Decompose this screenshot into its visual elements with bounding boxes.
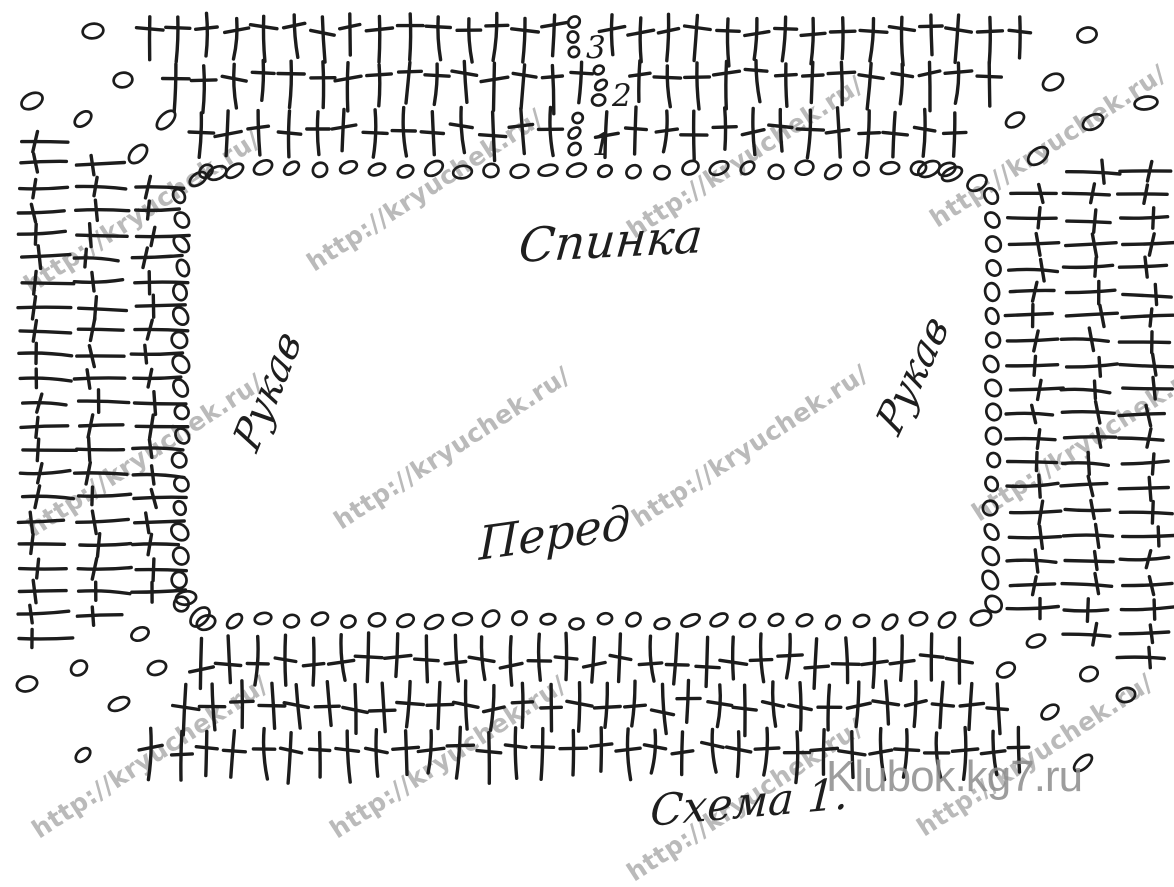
dc-stitch-icon (782, 17, 785, 61)
dc-stitch-icon (1121, 217, 1168, 219)
turning-chain-stack: 2 (591, 64, 632, 114)
dc-stitch-icon (74, 258, 118, 261)
dc-bar (426, 26, 450, 27)
row-number: 3 (586, 30, 606, 66)
dc-bar (486, 25, 508, 26)
chain-stitch-icon (129, 625, 150, 643)
dc-bar (750, 660, 771, 661)
dc-bar (1102, 160, 1104, 183)
dc-bar (87, 370, 90, 388)
dc-bar (1155, 284, 1156, 304)
dc-stitch-icon (842, 18, 843, 59)
dc-bar (1096, 524, 1099, 547)
dc-bar (1036, 234, 1040, 256)
dc-bar (1149, 234, 1154, 255)
dc-bar (1089, 328, 1093, 350)
dc-stitch-icon (1007, 560, 1056, 562)
dc-bar (151, 490, 156, 508)
dc-bar (567, 701, 592, 706)
dc-stitch-icon (870, 19, 874, 61)
dc-bar (946, 28, 972, 32)
chain-stitch-icon (395, 612, 415, 629)
chain-stitch-icon (982, 522, 1001, 543)
chain-stitch-icon (984, 282, 1001, 302)
dc-bar (1147, 429, 1151, 447)
dc-stitch-icon (18, 211, 64, 213)
dc-stitch-icon (231, 731, 235, 777)
dc-stitch-icon (493, 14, 497, 61)
dc-stitch-icon (1122, 315, 1173, 317)
dc-bar (789, 705, 811, 710)
dc-stitch-icon (263, 16, 264, 61)
dc-bar (153, 559, 154, 581)
chain-stitch-icon (1080, 111, 1105, 133)
dc-bar (355, 656, 382, 658)
dc-bar (1092, 234, 1096, 257)
dc-stitch-icon (1123, 294, 1171, 297)
dc-bar (284, 23, 305, 28)
dc-bar (915, 127, 935, 130)
dc-stitch-icon (294, 15, 298, 57)
site-watermark: Klubok.kg7.ru (826, 752, 1082, 802)
dc-stitch-icon (1006, 413, 1052, 415)
dc-bar (555, 657, 577, 659)
chain-stitch-icon (73, 745, 93, 764)
chain-stitch-icon (1116, 686, 1137, 703)
dc-stitch-icon (74, 280, 122, 283)
dc-bar (248, 126, 269, 129)
chain-stitch-icon (510, 609, 529, 628)
chain-stitch-icon (126, 141, 151, 166)
dc-stitch-icon (136, 305, 185, 306)
dc-stitch-icon (469, 19, 472, 62)
dc-bar (1149, 577, 1153, 595)
dc-bar (415, 659, 438, 661)
dc-bar (94, 177, 97, 195)
dc-stitch-icon (726, 61, 727, 108)
chain-stitch-icon (567, 31, 579, 44)
dc-stitch-icon (148, 728, 151, 779)
chain-stitch-icon (708, 159, 731, 178)
dc-stitch-icon (592, 638, 595, 682)
chain-stitch-icon (981, 353, 1001, 374)
dc-bar (862, 661, 887, 664)
left-chain-column (168, 187, 193, 614)
chain-stitch-icon (1134, 95, 1159, 111)
dc-bar (763, 702, 784, 707)
dc-bar (584, 663, 606, 668)
dc-bar (222, 76, 246, 81)
dc-stitch-icon (627, 729, 630, 780)
dc-bar (616, 748, 640, 751)
dc-stitch-icon (262, 61, 264, 101)
dc-bar (225, 28, 249, 32)
dc-stitch-icon (290, 61, 292, 107)
dc-bar (1149, 477, 1151, 500)
dc-bar (425, 75, 449, 76)
dc-stitch-icon (811, 18, 813, 63)
dc-stitch-icon (1011, 388, 1064, 390)
dc-bar (35, 224, 36, 244)
dc-stitch-icon (717, 685, 720, 727)
dc-bar (85, 249, 86, 267)
dc-bar (778, 655, 802, 656)
dc-bar (500, 663, 522, 668)
dc-bar (1146, 551, 1150, 568)
dc-stitch-icon (786, 64, 787, 106)
dc-bar (685, 26, 711, 30)
dc-stitch-icon (1123, 583, 1172, 585)
chain-stitch-icon (680, 158, 701, 177)
dc-bar (944, 132, 966, 133)
dc-bar (892, 73, 913, 76)
dc-bar (252, 72, 274, 73)
dc-bar (421, 132, 443, 134)
chain-stitch-icon (254, 611, 273, 625)
chain-stitch-icon (983, 234, 1004, 255)
dc-stitch-icon (379, 17, 380, 63)
dc-bar (259, 705, 285, 706)
dc-bar (610, 655, 631, 659)
dc-stitch-icon (80, 544, 131, 546)
dc-bar (366, 28, 392, 31)
dc-bar (33, 132, 38, 152)
dc-stitch-icon (1020, 17, 1021, 58)
dc-stitch-icon (76, 210, 129, 211)
dc-bar (427, 704, 453, 705)
dc-stitch-icon (1123, 388, 1173, 389)
dc-stitch-icon (522, 683, 523, 727)
top-edging-row (137, 13, 1031, 66)
dc-stitch-icon (1120, 557, 1168, 559)
dc-bar (172, 754, 193, 755)
dc-bar (505, 745, 526, 748)
dc-stitch-icon (132, 590, 186, 592)
dc-stitch-icon (350, 14, 351, 55)
dc-stitch-icon (1063, 463, 1109, 466)
dc-stitch-icon (382, 683, 385, 731)
dc-stitch-icon (712, 730, 716, 773)
chain-stitch-icon (591, 94, 606, 107)
chain-stitch-icon (15, 674, 39, 693)
dc-stitch-icon (780, 110, 782, 151)
dc-bar (509, 124, 532, 127)
dc-stitch-icon (650, 636, 654, 681)
dc-bar (625, 705, 646, 707)
crochet-diagram: http://kryuchek.ru/http://kryuchek.ru/ht… (0, 0, 1174, 843)
turning-chain-stack: 3 (566, 14, 606, 66)
chain-stitch-icon (653, 165, 670, 180)
dc-stitch-icon (1062, 584, 1112, 587)
chain-stitch-icon (565, 161, 587, 179)
dc-bar (275, 658, 296, 662)
chain-stitch-icon (995, 660, 1018, 681)
dc-stitch-icon (77, 163, 125, 166)
dc-bar (1149, 647, 1150, 667)
dc-bar (332, 125, 356, 129)
dc-stitch-icon (1061, 389, 1110, 393)
dc-bar (281, 748, 302, 753)
dc-bar (92, 511, 96, 533)
dc-stitch-icon (814, 639, 817, 689)
dc-stitch-icon (80, 425, 123, 426)
dc-stitch-icon (22, 283, 74, 284)
dc-bar (33, 297, 36, 319)
row-number: 2 (611, 78, 632, 114)
dc-bar (418, 748, 444, 751)
dc-bar (92, 607, 93, 625)
dc-stitch-icon (541, 729, 543, 780)
right-sleeve-block (1005, 160, 1174, 668)
dc-stitch-icon (79, 401, 129, 403)
dc-stitch-icon (1121, 607, 1174, 610)
dc-stitch-icon (1009, 269, 1058, 271)
dc-bar (801, 33, 825, 35)
dc-bar (445, 662, 466, 664)
dc-stitch-icon (136, 209, 180, 210)
dc-stitch-icon (134, 377, 181, 378)
dc-bar (148, 369, 152, 387)
dc-bar (542, 22, 568, 26)
chain-stitch-icon (984, 258, 1004, 278)
dc-stitch-icon (579, 62, 582, 102)
dc-bar (152, 466, 154, 484)
dc-bar (769, 125, 792, 127)
dc-stitch-icon (1119, 414, 1164, 416)
chain-stitch-icon (766, 162, 785, 181)
dc-stitch-icon (1061, 339, 1108, 341)
dc-stitch-icon (1065, 509, 1110, 510)
dc-bar (1096, 402, 1100, 423)
dc-bar (30, 512, 32, 533)
dc-stitch-icon (19, 638, 73, 639)
dc-stitch-icon (955, 15, 959, 62)
chain-stitch-icon (170, 377, 190, 399)
dc-stitch-icon (923, 109, 925, 156)
dc-bar (595, 707, 621, 708)
dc-bar (37, 394, 42, 412)
chain-stitch-icon (566, 14, 582, 30)
dc-stitch-icon (74, 378, 124, 379)
dc-bar (150, 415, 154, 437)
dc-bar (38, 246, 40, 269)
dc-bar (832, 664, 859, 665)
dc-bar (755, 748, 779, 749)
dc-bar (1153, 354, 1156, 375)
dc-bar (452, 71, 477, 75)
dc-bar (1099, 358, 1100, 377)
dc-stitch-icon (406, 731, 407, 775)
dc-bar (33, 321, 36, 342)
dc-stitch-icon (846, 638, 848, 683)
chain-stitch-icon (936, 609, 958, 630)
dc-bar (656, 129, 677, 132)
dc-stitch-icon (438, 17, 441, 60)
dc-bar (91, 156, 94, 175)
dc-bar (1008, 747, 1028, 748)
dc-stitch-icon (21, 161, 67, 162)
dc-stitch-icon (754, 19, 757, 60)
chain-stitch-icon (206, 163, 229, 182)
chain-stitch-icon (482, 163, 499, 179)
dc-bar (1034, 331, 1038, 351)
chain-stitch-icon (509, 163, 530, 180)
dc-bar (644, 745, 665, 749)
dc-stitch-icon (1066, 243, 1116, 246)
dc-stitch-icon (133, 448, 183, 450)
dc-stitch-icon (1009, 243, 1058, 245)
dc-bar (450, 124, 472, 128)
dc-stitch-icon (955, 63, 958, 103)
chain-stitch-icon (168, 520, 192, 543)
chain-stitch-icon (795, 612, 814, 628)
dc-bar (480, 135, 506, 137)
dc-stitch-icon (635, 107, 636, 154)
dc-bar (1038, 208, 1040, 228)
dc-stitch-icon (902, 17, 904, 65)
dc-bar (860, 30, 887, 32)
dc-stitch-icon (761, 634, 764, 682)
dc-stitch-icon (379, 65, 380, 106)
dc-bar (1153, 208, 1154, 228)
top-foundation-chain (197, 157, 958, 181)
dc-bar (315, 706, 339, 707)
dc-stitch-icon (510, 637, 511, 686)
dc-stitch-icon (1120, 512, 1172, 514)
dc-bar (196, 747, 217, 749)
dc-bar (397, 703, 424, 705)
dc-stitch-icon (553, 15, 555, 56)
dc-stitch-icon (320, 733, 321, 777)
chain-stitch-icon (767, 612, 785, 628)
dc-bar (1032, 405, 1036, 422)
dc-bar (1088, 476, 1093, 495)
dc-bar (303, 664, 323, 666)
dc-stitch-icon (457, 727, 461, 778)
dc-bar (977, 76, 1001, 77)
chain-stitch-icon (224, 611, 244, 630)
dc-bar (1144, 185, 1148, 203)
dc-stitch-icon (131, 353, 182, 354)
chain-stitch-icon (423, 158, 446, 179)
dc-bar (1095, 258, 1096, 276)
chain-stitch-icon (338, 159, 358, 176)
chain-stitch-icon (596, 163, 613, 179)
dc-stitch-icon (823, 730, 824, 775)
dc-stitch-icon (1066, 313, 1117, 316)
dc-stitch-icon (323, 62, 324, 108)
dc-stitch-icon (1065, 561, 1113, 562)
dc-stitch-icon (199, 113, 201, 157)
dc-stitch-icon (1011, 511, 1061, 513)
dc-bar (859, 75, 883, 79)
dc-bar (1040, 526, 1043, 548)
chain-stitch-icon (68, 658, 90, 679)
chain-stitch-icon (1078, 664, 1099, 683)
dc-stitch-icon (342, 109, 344, 150)
dc-stitch-icon (807, 110, 810, 158)
dc-bar (95, 200, 97, 220)
dc-bar (797, 129, 823, 130)
dc-stitch-icon (1008, 218, 1056, 219)
dc-stitch-icon (687, 680, 689, 722)
dc-stitch-icon (255, 637, 258, 685)
dc-stitch-icon (494, 63, 495, 110)
dc-bar (775, 28, 797, 29)
dc-bar (1148, 162, 1152, 182)
chain-stitch-icon (396, 163, 415, 180)
dc-bar (139, 745, 162, 750)
dc-stitch-icon (1007, 339, 1057, 341)
dc-stitch-icon (20, 187, 68, 189)
dc-bar (31, 534, 33, 553)
dc-stitch-icon (989, 18, 990, 64)
dc-bar (776, 75, 797, 76)
chain-stitch-icon (480, 607, 503, 629)
dc-bar (88, 415, 93, 437)
dc-bar (166, 27, 190, 28)
dc-bar (666, 665, 688, 666)
dc-bar (34, 272, 36, 295)
chain-stitch-icon (1040, 70, 1066, 93)
dc-bar (366, 748, 388, 752)
dc-bar (953, 749, 978, 751)
chain-stitch-icon (1003, 109, 1026, 130)
dc-bar (1091, 184, 1095, 203)
dc-bar (626, 128, 647, 130)
dc-bar (658, 29, 678, 33)
dc-bar (137, 28, 164, 30)
dc-stitch-icon (1064, 265, 1113, 267)
chain-stitch-icon (984, 426, 1002, 445)
chain-stitch-icon (593, 78, 608, 92)
chain-stitch-icon (624, 610, 643, 629)
chain-stitch-icon (540, 613, 556, 625)
dc-bar (1041, 260, 1045, 281)
chain-stitch-icon (979, 544, 1002, 568)
dc-stitch-icon (341, 635, 345, 681)
dc-bar (1037, 430, 1039, 449)
chain-stitch-icon (171, 187, 188, 205)
dc-stitch-icon (19, 591, 66, 592)
dc-bar (481, 77, 508, 81)
dc-bar (919, 71, 940, 76)
chain-stitch-icon (566, 125, 582, 140)
dc-bar (1039, 475, 1040, 497)
dc-bar (1153, 454, 1154, 474)
chain-stitch-icon (171, 282, 188, 302)
dc-stitch-icon (242, 681, 243, 728)
dc-bar (30, 605, 32, 623)
dc-bar (191, 80, 216, 81)
chain-stitch-icon (1039, 702, 1061, 723)
dc-stitch-icon (464, 62, 467, 103)
dc-stitch-icon (727, 19, 728, 66)
dc-stitch-icon (900, 64, 902, 104)
dc-stitch-icon (406, 63, 410, 104)
dc-stitch-icon (1067, 172, 1120, 174)
dc-stitch-icon (1123, 535, 1174, 536)
dc-bar (542, 76, 562, 78)
dc-bar (385, 655, 411, 658)
dc-stitch-icon (434, 64, 437, 104)
chain-stitch-icon (175, 258, 191, 278)
dc-stitch-icon (1062, 412, 1114, 414)
chain-stitch-icon (853, 161, 870, 177)
dc-stitch-icon (206, 731, 207, 775)
dc-stitch-icon (20, 471, 70, 474)
dc-stitch-icon (1005, 314, 1052, 316)
